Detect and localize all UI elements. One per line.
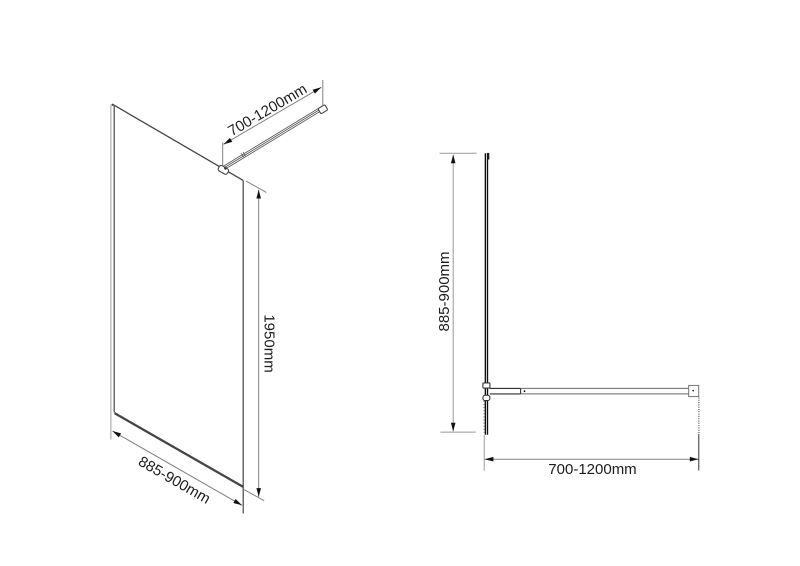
svg-text:700-1200mm: 700-1200mm: [225, 81, 310, 140]
svg-text:885-900mm: 885-900mm: [135, 453, 213, 508]
svg-text:885-900mm: 885-900mm: [436, 251, 453, 331]
svg-text:700-1200mm: 700-1200mm: [548, 461, 636, 478]
svg-text:1950mm: 1950mm: [261, 314, 278, 372]
